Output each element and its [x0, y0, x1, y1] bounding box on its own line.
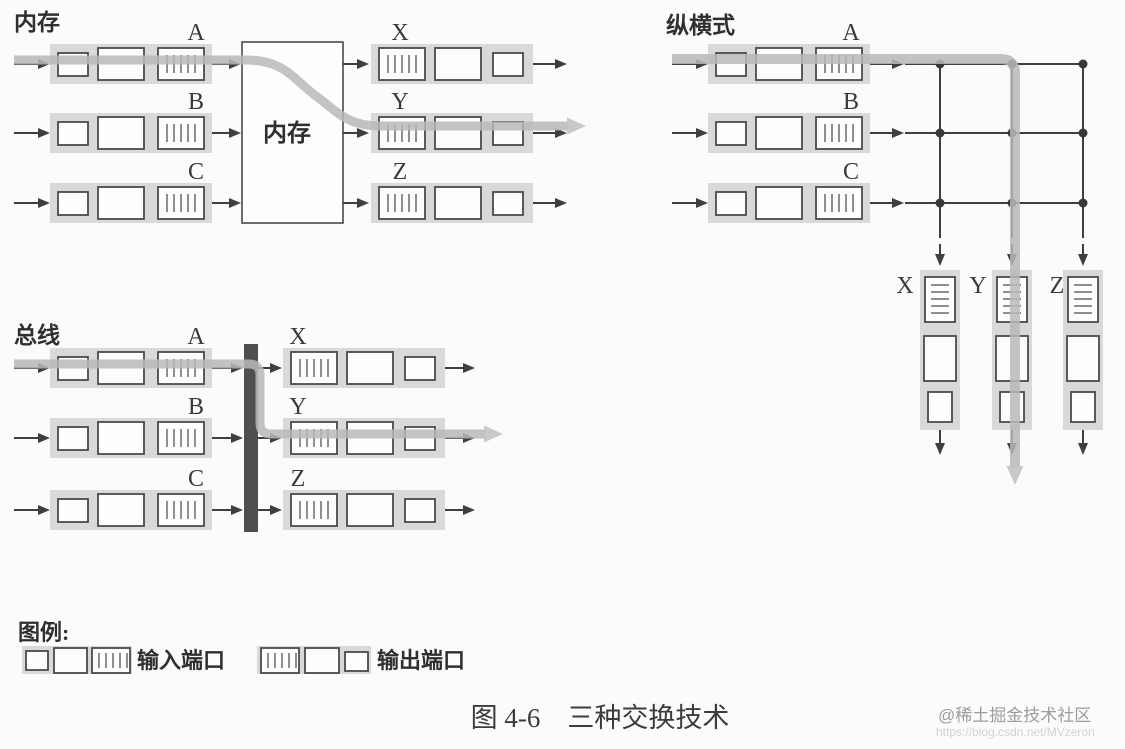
output-port-label: Z [291, 466, 306, 492]
bus-diagram-title: 总线 [14, 322, 60, 348]
output-port-label: X [391, 20, 408, 46]
input-port [50, 490, 212, 530]
input-port-label: A [187, 20, 205, 46]
output-port-label: X [289, 324, 306, 350]
watermark-url: https://blog.csdn.net/MVzeron [936, 725, 1095, 739]
input-port [50, 113, 212, 153]
legend-output-medium-box [305, 648, 339, 673]
output-port-label: Z [393, 159, 408, 185]
output-port [371, 113, 533, 153]
output-port [283, 490, 445, 530]
input-port [708, 183, 870, 223]
output-port [371, 44, 533, 84]
watermark-community: @稀土掘金技术社区 [938, 706, 1091, 725]
figure-caption: 图 4-6 三种交换技术 [471, 703, 730, 733]
legend-input-queue-box [92, 648, 130, 673]
legend-output-queue-box [261, 648, 299, 673]
output-port [920, 270, 960, 430]
crosspoint-dot [1079, 60, 1088, 69]
input-port-label: B [188, 394, 204, 420]
watermark: https://blog.csdn.net/MVzeron @稀土掘金技术社区 [936, 706, 1095, 739]
input-port-label: B [843, 89, 859, 115]
input-port-label: C [188, 159, 204, 185]
output-port-label: X [896, 273, 913, 299]
bus-switching-diagram: 总线 A B C X Y Z [14, 322, 485, 532]
crosspoint-dot [1079, 129, 1088, 138]
memory-switch-label: 内存 [263, 120, 311, 147]
output-port [371, 183, 533, 223]
legend-output-port-label: 输出端口 [377, 648, 465, 673]
figure-canvas: 内存 A B C 内存 X Y Z 纵横式 [0, 0, 1125, 749]
legend-input-small-box [26, 651, 48, 670]
input-port-label: A [842, 20, 860, 46]
input-port [708, 113, 870, 153]
memory-switching-diagram: 内存 A B C 内存 X Y Z [14, 9, 568, 223]
input-port-label: A [187, 324, 205, 350]
input-port-label: C [188, 466, 204, 492]
legend-input-medium-box [54, 648, 87, 673]
figure-page: 内存 A B C 内存 X Y Z 纵横式 [0, 0, 1125, 749]
input-port [50, 183, 212, 223]
memory-diagram-title: 内存 [14, 9, 60, 35]
crosspoint-dot [936, 129, 945, 138]
input-port [50, 418, 212, 458]
output-port [1063, 270, 1103, 430]
input-port-label: B [188, 89, 204, 115]
legend-output-small-box [345, 652, 368, 671]
crossbar-switching-diagram: 纵横式 A B C X Y Z [666, 13, 1103, 467]
crosspoint-dot [1079, 199, 1088, 208]
output-port-label: Y [969, 273, 986, 299]
output-port-label: Y [391, 89, 408, 115]
crosspoint-dot [936, 199, 945, 208]
crossbar-diagram-title: 纵横式 [666, 13, 735, 38]
output-port [283, 348, 445, 388]
input-port-label: C [843, 159, 859, 185]
crossbar-row-lines [905, 64, 1083, 203]
legend-title: 图例: [18, 620, 69, 645]
output-port-label: Y [289, 394, 306, 420]
legend-input-port-label: 输入端口 [137, 648, 225, 673]
legend: 图例: 输入端口 输出端口 [18, 620, 465, 674]
output-port-label: Z [1050, 273, 1065, 299]
